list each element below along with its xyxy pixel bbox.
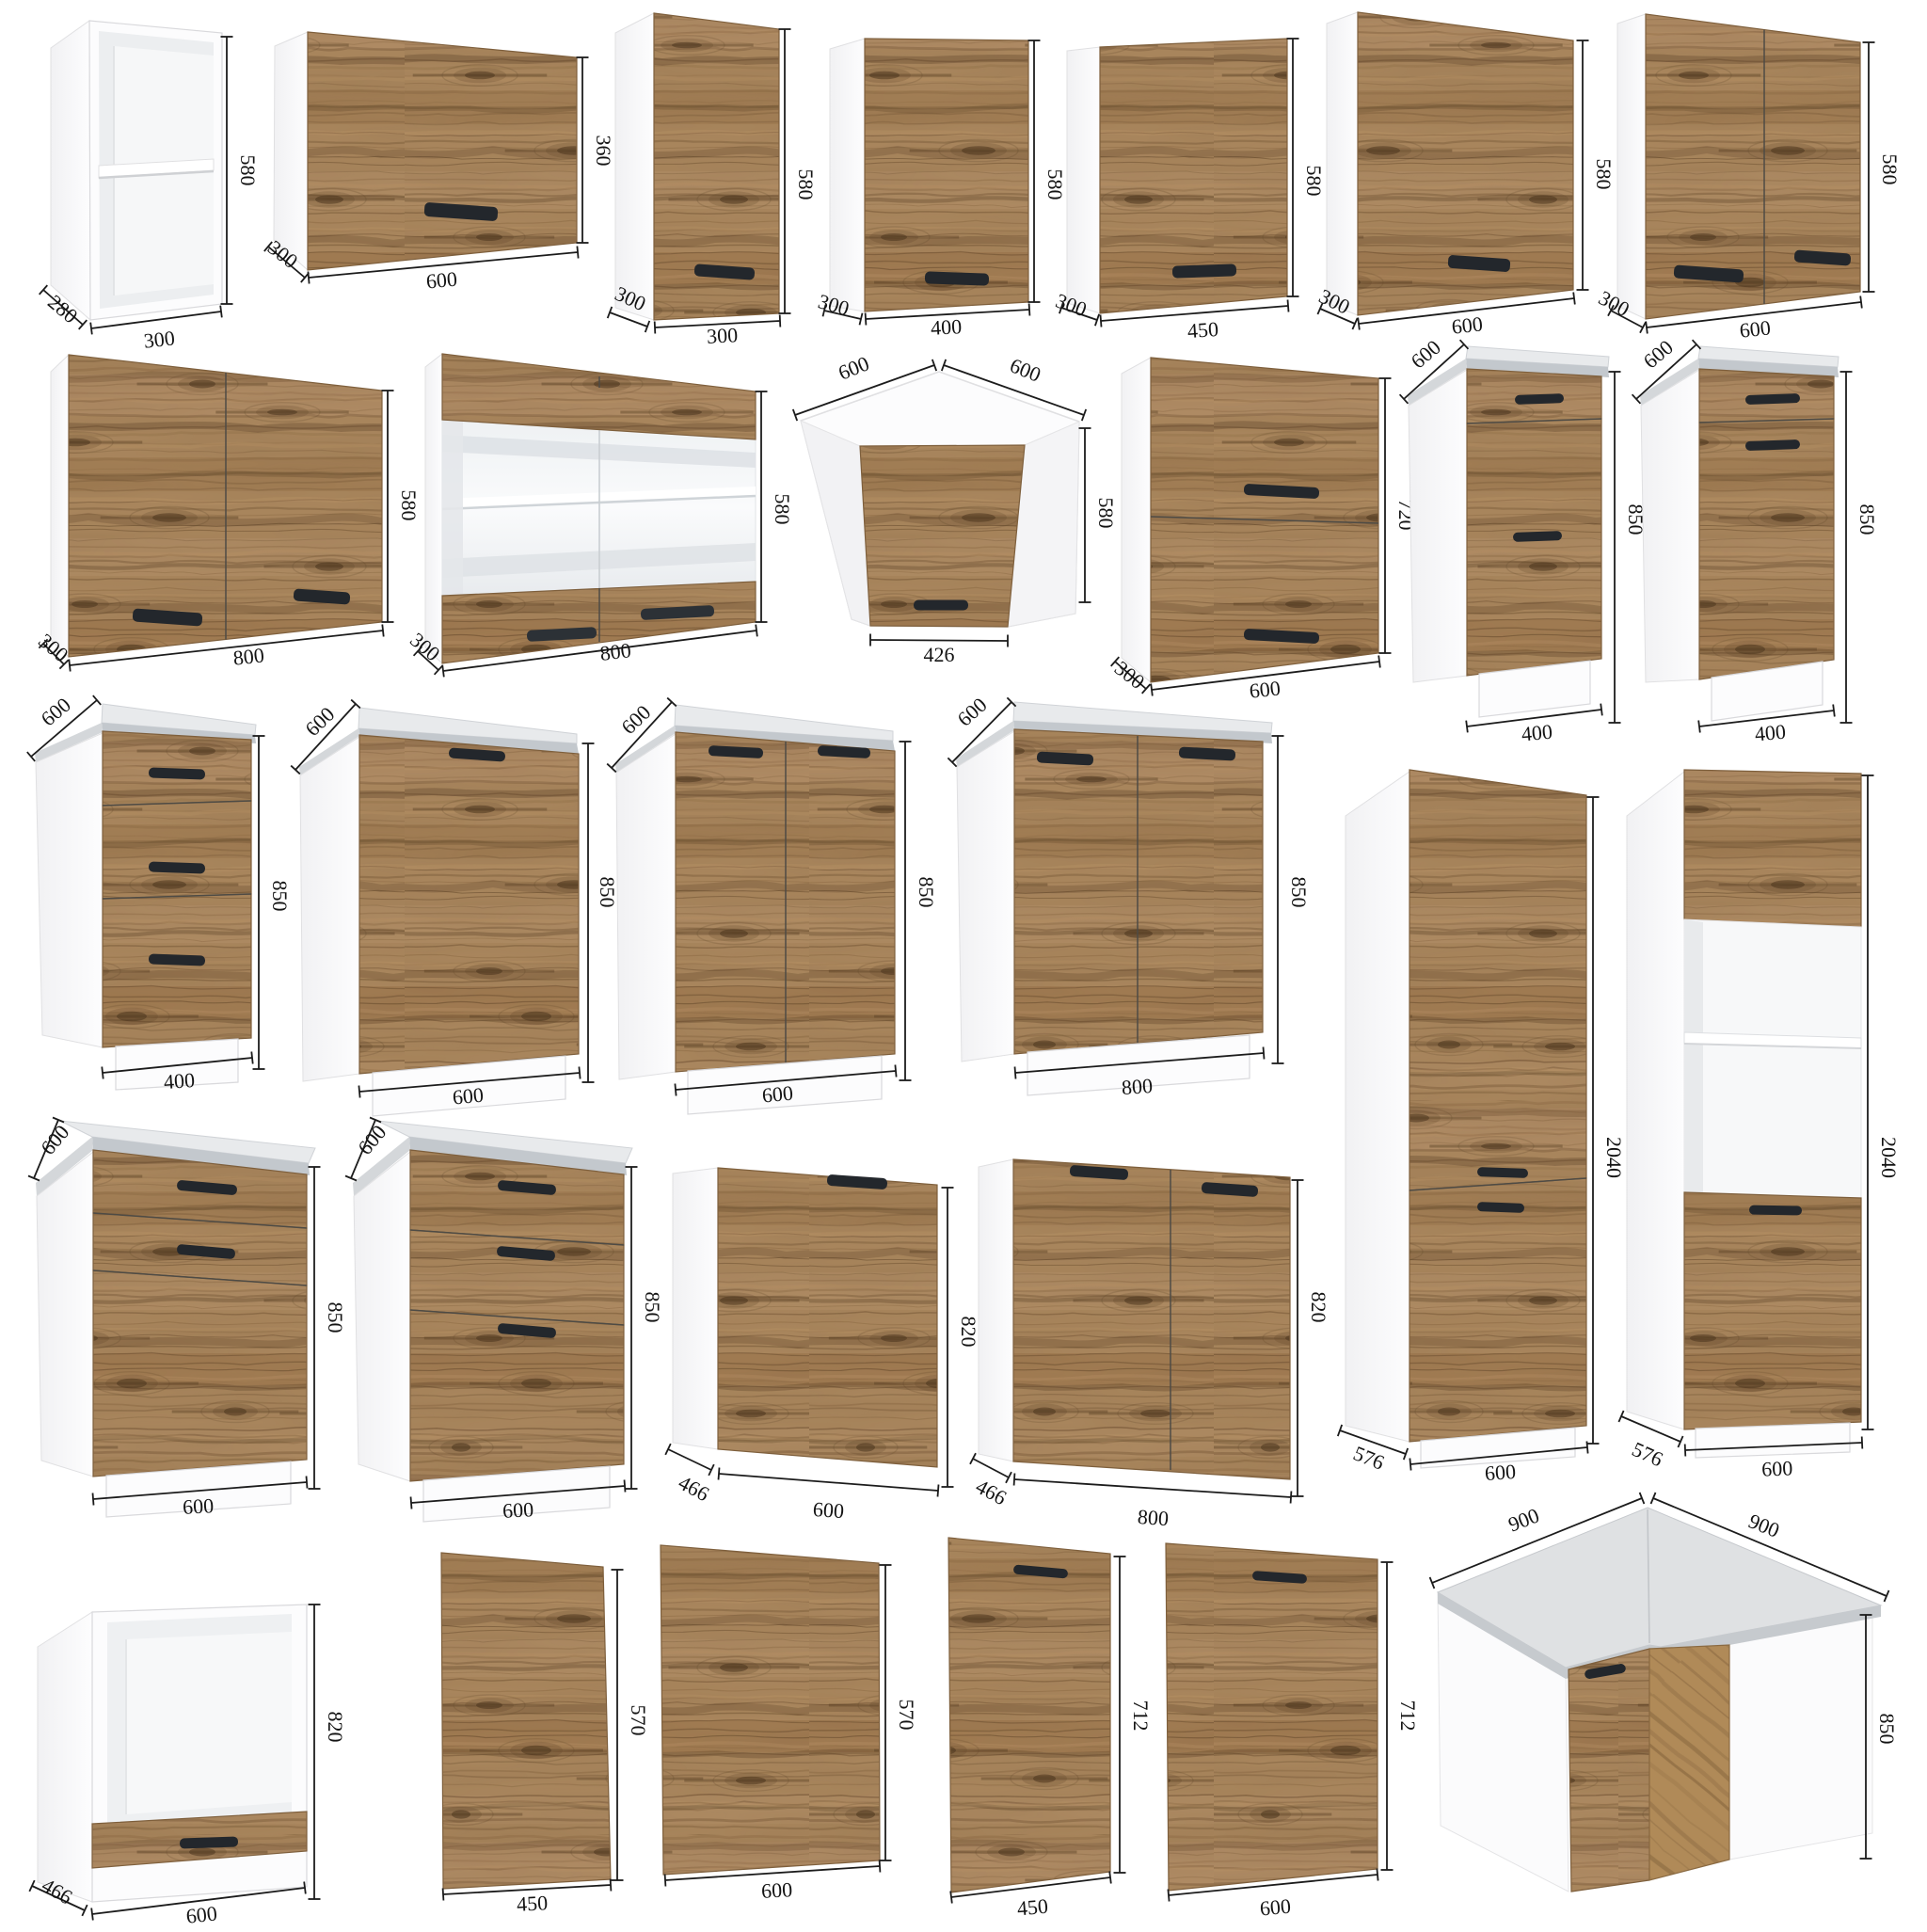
svg-text:600: 600 (425, 267, 458, 294)
svg-text:400: 400 (163, 1068, 196, 1094)
svg-text:712: 712 (1396, 1700, 1420, 1732)
svg-text:820: 820 (324, 1712, 347, 1743)
svg-text:580: 580 (1043, 169, 1067, 200)
svg-text:360: 360 (592, 136, 615, 167)
svg-text:570: 570 (627, 1705, 650, 1736)
svg-text:800: 800 (598, 638, 632, 665)
svg-text:850: 850 (641, 1292, 664, 1323)
svg-text:820: 820 (1307, 1292, 1330, 1323)
svg-text:580: 580 (794, 169, 818, 200)
svg-text:600: 600 (761, 1081, 794, 1108)
svg-text:450: 450 (1016, 1894, 1049, 1921)
svg-text:600: 600 (1738, 315, 1771, 342)
svg-text:580: 580 (771, 494, 794, 525)
svg-text:600: 600 (1761, 1456, 1793, 1480)
svg-text:600: 600 (812, 1497, 845, 1523)
svg-text:450: 450 (516, 1891, 548, 1916)
svg-text:600: 600 (452, 1083, 485, 1110)
svg-text:426: 426 (924, 643, 955, 666)
svg-text:850: 850 (268, 881, 292, 912)
svg-text:580: 580 (1094, 498, 1118, 529)
svg-text:800: 800 (1137, 1505, 1170, 1530)
svg-text:800: 800 (1121, 1074, 1154, 1099)
svg-text:400: 400 (1521, 720, 1553, 746)
svg-text:600: 600 (182, 1493, 214, 1519)
svg-text:712: 712 (1129, 1700, 1153, 1732)
svg-text:580: 580 (397, 490, 421, 521)
svg-text:2040: 2040 (1877, 1137, 1901, 1178)
svg-text:600: 600 (1484, 1460, 1517, 1485)
svg-text:850: 850 (1287, 877, 1311, 908)
svg-text:400: 400 (1754, 720, 1787, 746)
svg-text:300: 300 (142, 326, 175, 352)
svg-text:2040: 2040 (1602, 1137, 1626, 1178)
svg-text:570: 570 (895, 1700, 918, 1731)
svg-text:400: 400 (930, 314, 962, 340)
svg-text:800: 800 (231, 643, 264, 669)
svg-text:580: 580 (1878, 154, 1902, 185)
svg-text:850: 850 (596, 877, 619, 908)
svg-text:850: 850 (324, 1302, 347, 1333)
svg-text:600: 600 (184, 1901, 217, 1927)
svg-text:850: 850 (1855, 504, 1879, 535)
svg-text:300: 300 (706, 323, 738, 348)
svg-text:450: 450 (1186, 317, 1219, 343)
svg-text:600: 600 (1259, 1894, 1292, 1921)
svg-text:850: 850 (1875, 1714, 1899, 1745)
svg-text:850: 850 (915, 877, 938, 908)
svg-text:600: 600 (502, 1497, 534, 1523)
svg-text:580: 580 (1302, 166, 1326, 197)
svg-text:600: 600 (760, 1877, 792, 1903)
svg-text:580: 580 (236, 155, 260, 186)
svg-text:580: 580 (1592, 159, 1616, 190)
svg-text:600: 600 (1248, 676, 1281, 702)
svg-text:820: 820 (957, 1317, 980, 1348)
svg-text:600: 600 (1450, 311, 1483, 338)
